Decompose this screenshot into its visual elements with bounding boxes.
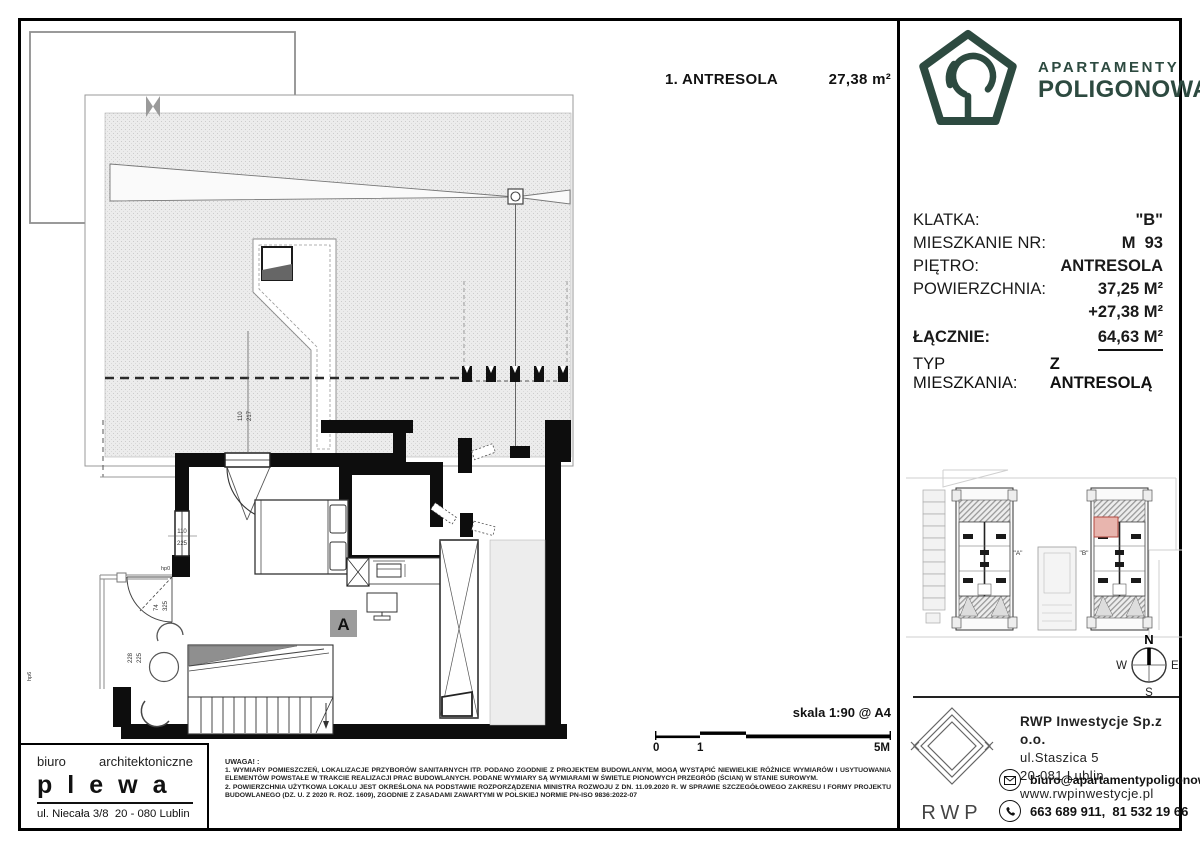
sheet-page: A 110 217 110 225 hp0 74 325 228 225 hp6… <box>18 18 1182 831</box>
info-row-pietro: PIĘTRO: ANTRESOLA <box>913 255 1163 278</box>
stairs <box>188 645 333 734</box>
svg-text:74: 74 <box>154 604 160 611</box>
developer-logo-icon: RWP <box>910 701 994 826</box>
info-row-powierzchnia-2: +27,38 M² <box>913 301 1163 324</box>
contact-email: biuro@apartamentypoligonowa.pl <box>1030 773 1200 787</box>
architect-title-left: biuro <box>37 754 66 769</box>
phone-icon <box>999 800 1021 822</box>
developer-logo-text: RWP <box>921 802 982 824</box>
developer-street: ul.Staszica 5 <box>1020 749 1179 767</box>
pillow <box>330 542 346 570</box>
notes-block: UWAGA! : 1. WYMIARY POMIESZCZEŃ, LOKALIZ… <box>225 758 891 801</box>
plan-area-value: 27,38 m² <box>829 71 891 88</box>
scale-tick-0: 0 <box>653 742 659 754</box>
closet-room <box>352 475 430 555</box>
site-label-b: "B" <box>1080 550 1090 557</box>
roof-surface <box>105 113 571 457</box>
architect-name: plewa <box>37 770 193 804</box>
svg-text:hp0: hp0 <box>161 566 170 572</box>
developer-company: RWP Inwestycje Sp.z o.o. <box>1020 713 1179 749</box>
site-stair-strip <box>923 490 945 623</box>
roof-drain-icon <box>508 189 523 204</box>
scale-bar <box>655 730 891 740</box>
contact-phones: 663 689 911, 81 532 19 66 <box>1030 804 1188 819</box>
entry-door <box>127 577 172 622</box>
printer-icon <box>377 564 401 577</box>
void-strip <box>490 540 545 725</box>
svg-text:325: 325 <box>163 600 169 611</box>
wardrobe <box>440 540 478 718</box>
architect-title: biuro architektoniczne <box>37 754 193 769</box>
svg-text:110: 110 <box>238 411 244 421</box>
svg-text:225: 225 <box>177 541 188 547</box>
scale-tick-5m: 5M <box>874 742 890 754</box>
floor-plan-drawing: A 110 217 110 225 hp0 74 325 228 225 hp6 <box>21 21 897 743</box>
compass-n: N <box>1144 632 1153 647</box>
notes-heading: UWAGA! : <box>225 758 891 767</box>
site-plan-map: "A" "B" N S W E <box>906 455 1182 701</box>
contact-phone-row: 663 689 911, 81 532 19 66 <box>999 800 1188 822</box>
scale-label: skala 1:90 @ A4 <box>651 705 891 720</box>
info-panel: APARTAMENTY POLIGONOWA KLATKA: "B" MIESZ… <box>900 21 1179 828</box>
table-and-chairs <box>141 623 183 727</box>
svg-text:217: 217 <box>247 410 253 421</box>
bed <box>255 500 348 574</box>
compass-w: W <box>1116 660 1127 672</box>
architect-stamp: biuro architektoniczne plewa ul. Niecała… <box>21 743 209 828</box>
brand-wordmark: APARTAMENTY POLIGONOWA <box>1038 60 1200 102</box>
svg-text:225: 225 <box>137 652 143 663</box>
site-connector <box>1038 547 1076 630</box>
scale-tick-1: 1 <box>697 742 703 754</box>
site-building-a <box>952 488 1017 630</box>
room-label-badge: A <box>330 610 357 637</box>
highlighted-unit <box>1094 517 1118 537</box>
info-row-klatka: KLATKA: "B" <box>913 209 1163 232</box>
round-table <box>150 653 179 682</box>
monitor-icon <box>367 593 397 620</box>
brand-logo-icon <box>916 19 1020 144</box>
compass-rose-icon: N S W E <box>1116 632 1179 699</box>
chair <box>157 623 183 641</box>
info-row-powierzchnia: POWIERZCHNIA: 37,25 M² <box>913 278 1163 301</box>
note-item-2: 2. POWIERZCHNIA UŻYTKOWA LOKALU JEST OKR… <box>225 784 891 801</box>
brand-line1: APARTAMENTY <box>1038 60 1200 75</box>
contact-email-row: biuro@apartamentypoligonowa.pl <box>999 769 1200 791</box>
shaft-box <box>347 558 369 586</box>
brand-line2: POLIGONOWA <box>1038 78 1200 102</box>
plan-title: 1. ANTRESOLA <box>665 71 778 88</box>
svg-text:110: 110 <box>177 529 187 535</box>
svg-text:A: A <box>337 615 349 634</box>
unit-info-table: KLATKA: "B" MIESZKANIE NR: M 93 PIĘTRO: … <box>913 209 1163 351</box>
info-row-lacznie: ŁĄCZNIE: 64,63 M² <box>913 326 1163 351</box>
plan-header: 1. ANTRESOLA 27,38 m² <box>665 71 891 88</box>
svg-text:228: 228 <box>128 652 134 663</box>
compass-e: E <box>1171 660 1179 672</box>
svg-text:hp6: hp6 <box>27 672 33 681</box>
site-label-a: "A" <box>1014 550 1024 557</box>
desk <box>369 558 440 584</box>
unit-type-row: TYP MIESZKANIA: Z ANTRESOLĄ <box>913 355 1163 393</box>
site-building-b <box>1087 488 1152 630</box>
info-row-mieszkanie: MIESZKANIE NR: M 93 <box>913 232 1163 255</box>
note-item-1: 1. WYMIARY POMIESZCZEŃ, LOKALIZACJE PRZY… <box>225 767 891 784</box>
architect-title-right: architektoniczne <box>99 754 193 769</box>
architect-address: ul. Niecała 3/8 20 - 080 Lublin <box>37 808 193 820</box>
chair <box>141 701 169 727</box>
door-leaf <box>472 521 496 535</box>
pillow <box>330 505 346 533</box>
email-icon <box>999 769 1021 791</box>
panel-section-divider <box>913 696 1179 698</box>
